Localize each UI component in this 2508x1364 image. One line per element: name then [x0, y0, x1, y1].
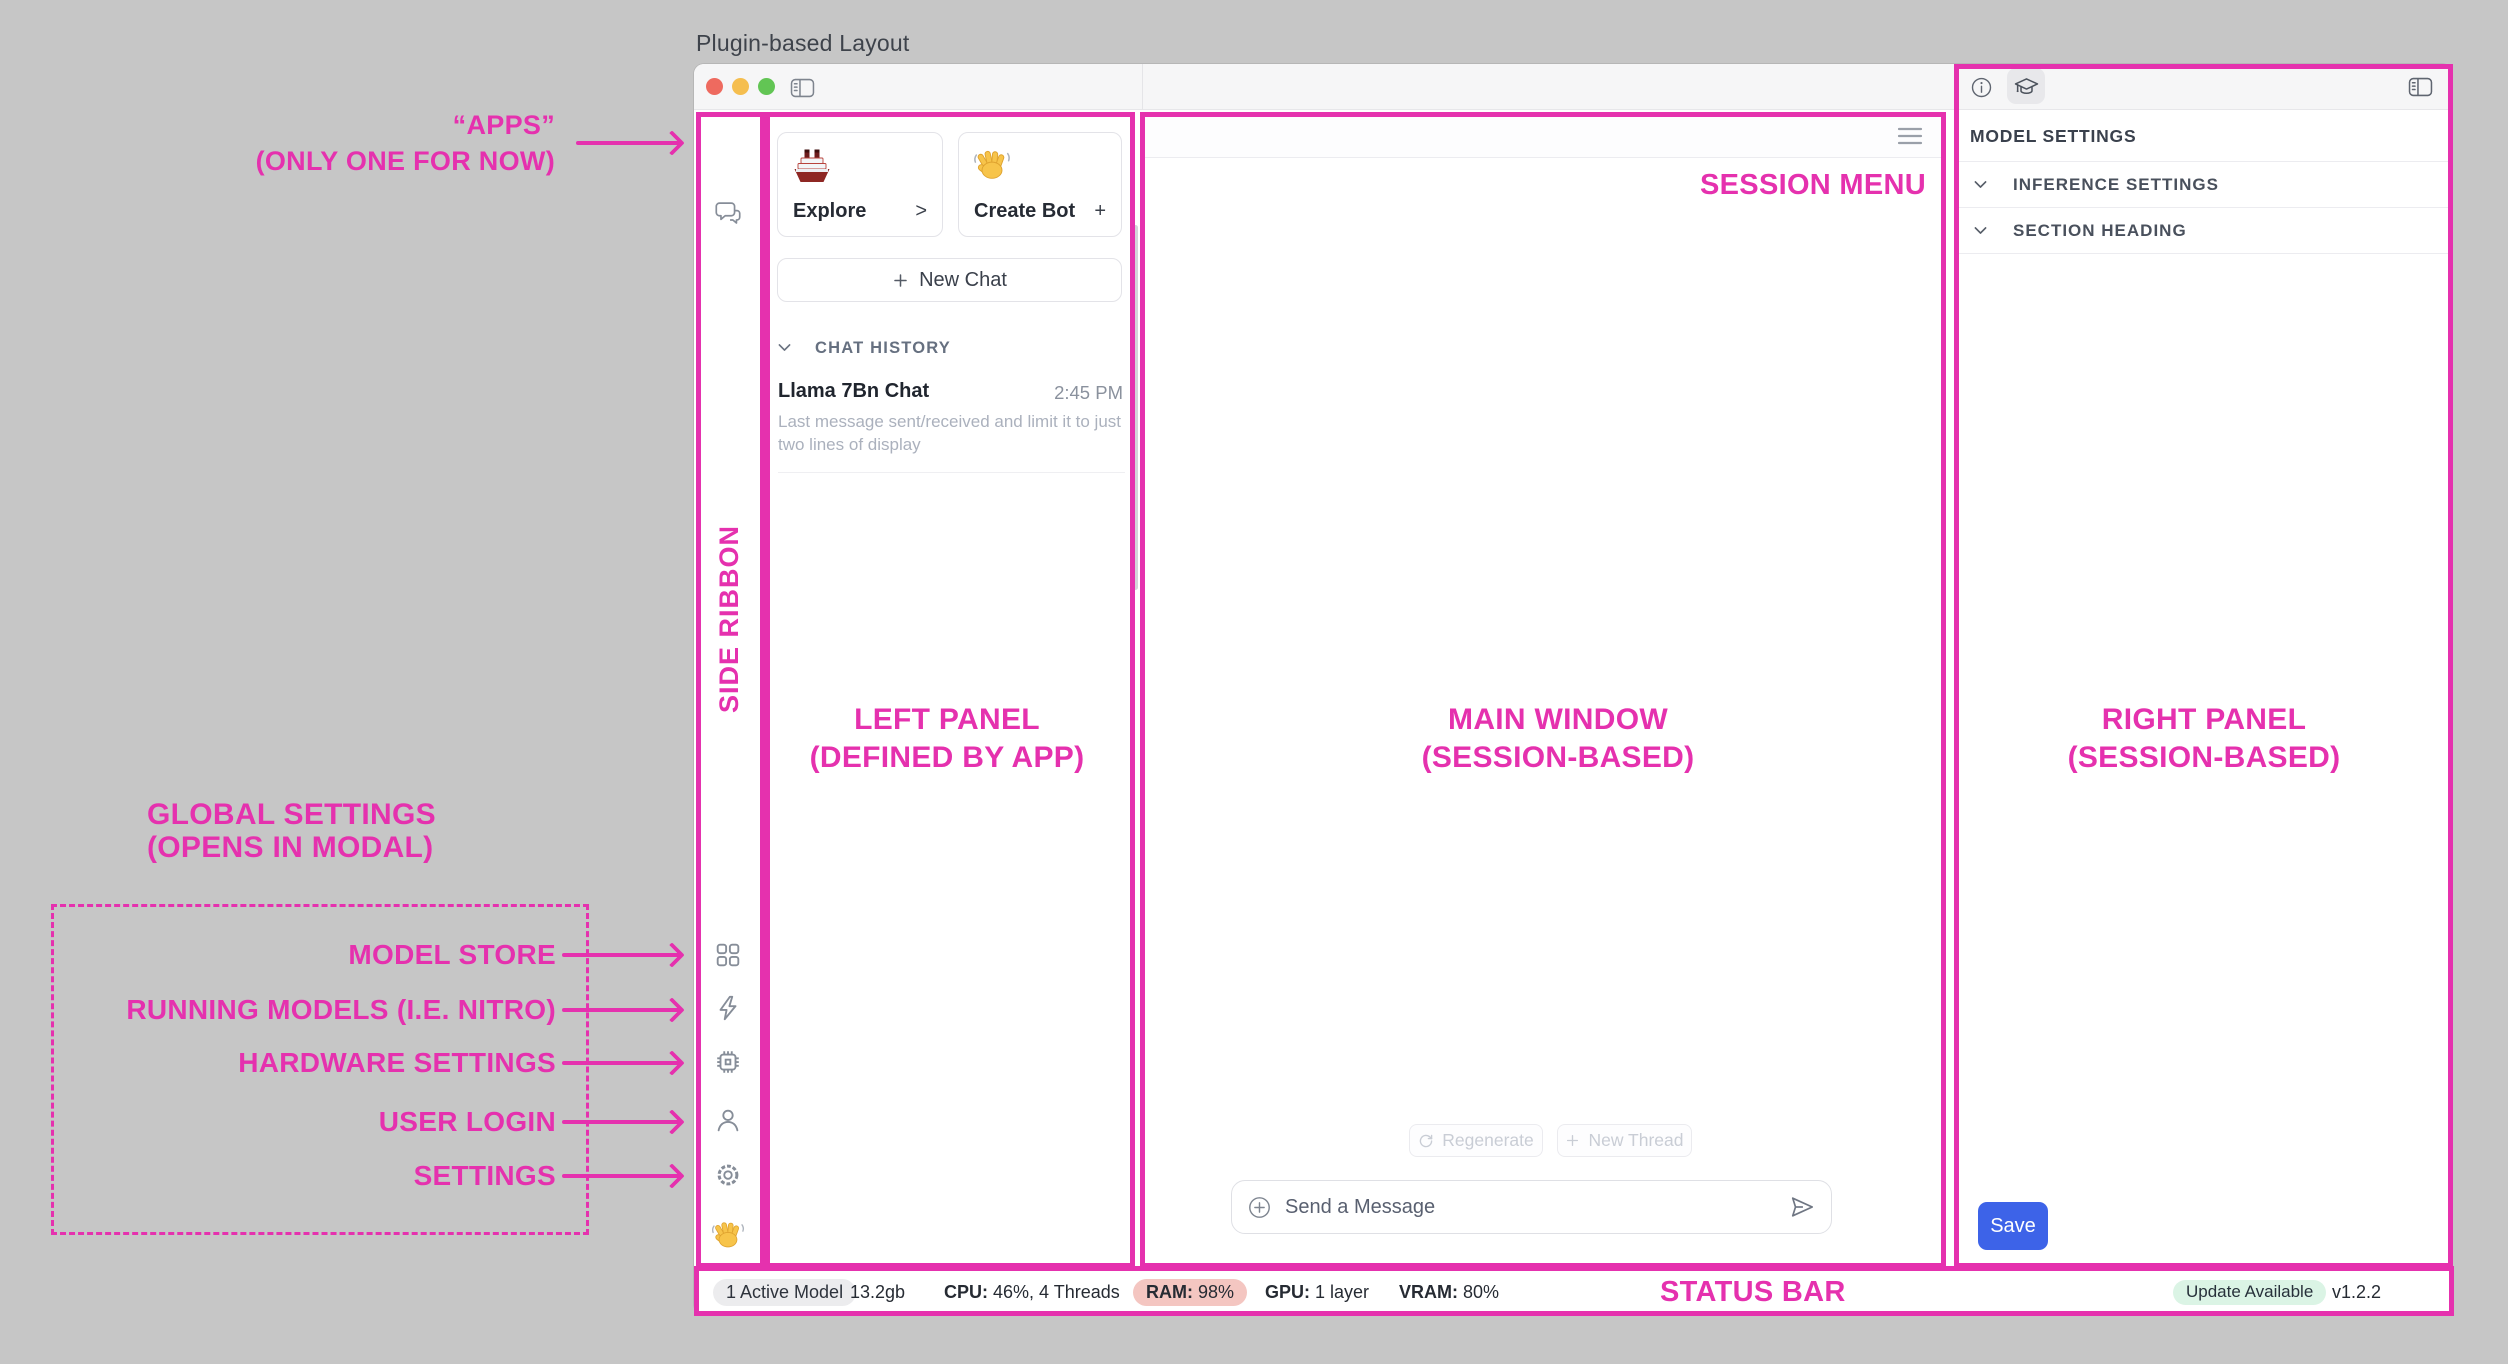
explore-card-affordance: > — [915, 200, 927, 223]
new-thread-button[interactable]: New Thread — [1557, 1124, 1692, 1157]
window-controls — [706, 78, 775, 95]
message-input[interactable] — [1285, 1196, 1789, 1219]
chat-item-preview-line2: two lines of display — [778, 433, 1130, 456]
new-chat-button-label: New Chat — [919, 269, 1007, 292]
app-version: v1.2.2 — [2332, 1272, 2381, 1312]
model-store-annotation: MODEL STORE — [60, 938, 556, 972]
chat-item-divider — [778, 472, 1125, 473]
titlebar-divider — [1142, 64, 1143, 110]
section-heading-row[interactable]: SECTION HEADING — [1955, 208, 2452, 254]
settings-gear-icon[interactable] — [713, 1160, 743, 1190]
chat-app-icon[interactable] — [713, 197, 743, 227]
screenshot-canvas: Plugin-based Layout Ex — [0, 0, 2508, 1364]
model-memory-size: 13.2gb — [850, 1272, 905, 1312]
user-login-annotation: USER LOGIN — [60, 1105, 556, 1139]
model-store-arrow — [562, 953, 682, 957]
global-settings-annotation: GLOBAL SETTINGS (OPENS IN MODAL) — [147, 798, 436, 864]
create-bot-card-affordance: + — [1094, 200, 1106, 223]
settings-arrow — [562, 1174, 682, 1178]
chat-item-preview-line1: Last message sent/received and limit it … — [778, 410, 1130, 433]
app-window: Explore > Create Bot + New Chat CHAT HIS… — [694, 64, 2452, 1314]
right-panel: MODEL SETTINGS INFERENCE SETTINGS SECTIO… — [1955, 64, 2452, 1278]
plus-icon — [1565, 1133, 1580, 1148]
chat-item-title: Llama 7Bn Chat — [778, 380, 929, 403]
info-icon[interactable] — [1969, 75, 1994, 100]
create-bot-card[interactable]: Create Bot + — [958, 132, 1122, 237]
regenerate-button[interactable]: Regenerate — [1409, 1124, 1543, 1157]
explore-card[interactable]: Explore > — [777, 132, 943, 237]
inference-settings-label: INFERENCE SETTINGS — [2013, 175, 2219, 195]
zoom-window-button[interactable] — [758, 78, 775, 95]
explore-card-label: Explore — [793, 200, 866, 223]
global-settings-dashed-box — [51, 904, 589, 1235]
minimize-window-button[interactable] — [732, 78, 749, 95]
left-panel-scrollbar[interactable] — [1133, 225, 1138, 590]
cpu-status: CPU:46%, 4 Threads — [944, 1272, 1120, 1312]
save-button-label: Save — [1990, 1215, 2036, 1238]
wave-hand-icon[interactable] — [711, 1218, 745, 1252]
running-models-arrow — [562, 1008, 682, 1012]
apps-arrow — [576, 141, 682, 145]
side-ribbon — [694, 112, 765, 1278]
chevron-down-icon — [1972, 176, 1989, 193]
settings-annotation: SETTINGS — [60, 1159, 556, 1193]
update-available-badge[interactable]: Update Available — [2173, 1272, 2326, 1312]
wave-hand-emoji-icon — [973, 146, 1011, 184]
page-title: Plugin-based Layout — [696, 30, 910, 57]
gpu-status: GPU:1 layer — [1265, 1272, 1369, 1312]
refresh-icon — [1418, 1133, 1434, 1149]
message-composer — [1231, 1180, 1832, 1234]
new-thread-button-label: New Thread — [1588, 1130, 1683, 1151]
running-models-icon[interactable] — [713, 993, 743, 1023]
main-window: Regenerate New Thread — [1141, 112, 1946, 1278]
close-window-button[interactable] — [706, 78, 723, 95]
main-window-header — [1141, 112, 1946, 158]
right-panel-toggle-icon[interactable] — [2407, 75, 2434, 99]
vram-status: VRAM:80% — [1399, 1272, 1499, 1312]
hardware-settings-annotation: HARDWARE SETTINGS — [60, 1046, 556, 1080]
right-panel-body: MODEL SETTINGS INFERENCE SETTINGS SECTIO… — [1955, 111, 2452, 1278]
chat-item-time: 2:45 PM — [1054, 382, 1123, 404]
apps-annotation: “APPS” (ONLY ONE FOR NOW) — [155, 107, 555, 179]
model-settings-tab[interactable] — [2007, 68, 2045, 104]
chat-list-item[interactable]: Llama 7Bn Chat 2:45 PM Last message sent… — [765, 372, 1141, 482]
model-settings-section-header: MODEL SETTINGS — [1955, 111, 2452, 162]
section-heading-label: SECTION HEADING — [2013, 221, 2187, 241]
active-model-badge[interactable]: 1 Active Model — [713, 1272, 856, 1312]
attach-plus-icon[interactable] — [1246, 1194, 1273, 1221]
ram-status-badge: RAM:98% — [1133, 1272, 1247, 1312]
session-menu-icon[interactable] — [1896, 125, 1924, 147]
right-panel-header — [1955, 64, 2452, 110]
model-store-icon[interactable] — [713, 940, 743, 970]
chat-history-header: CHAT HISTORY — [815, 339, 951, 358]
send-message-icon[interactable] — [1789, 1194, 1815, 1220]
hardware-settings-arrow — [562, 1061, 682, 1065]
running-models-annotation: RUNNING MODELS (I.E. NITRO) — [60, 993, 556, 1027]
status-bar: 1 Active Model 13.2gb CPU:46%, 4 Threads… — [694, 1272, 2452, 1312]
inference-settings-row[interactable]: INFERENCE SETTINGS — [1955, 162, 2452, 208]
hardware-settings-icon[interactable] — [713, 1047, 743, 1077]
user-login-icon[interactable] — [713, 1105, 743, 1135]
plus-icon — [892, 272, 909, 289]
new-chat-button[interactable]: New Chat — [777, 258, 1122, 302]
graduation-cap-icon — [2013, 73, 2040, 100]
save-button[interactable]: Save — [1978, 1202, 2048, 1250]
ship-emoji-icon — [792, 146, 832, 186]
chat-history-chevron-icon[interactable] — [776, 339, 793, 356]
create-bot-card-label: Create Bot — [974, 200, 1075, 223]
sidebar-toggle-icon[interactable] — [789, 76, 816, 100]
model-settings-label: MODEL SETTINGS — [1970, 126, 2136, 147]
regenerate-button-label: Regenerate — [1442, 1130, 1533, 1151]
user-login-arrow — [562, 1120, 682, 1124]
left-panel: Explore > Create Bot + New Chat CHAT HIS… — [765, 112, 1141, 1278]
chevron-down-icon — [1972, 222, 1989, 239]
